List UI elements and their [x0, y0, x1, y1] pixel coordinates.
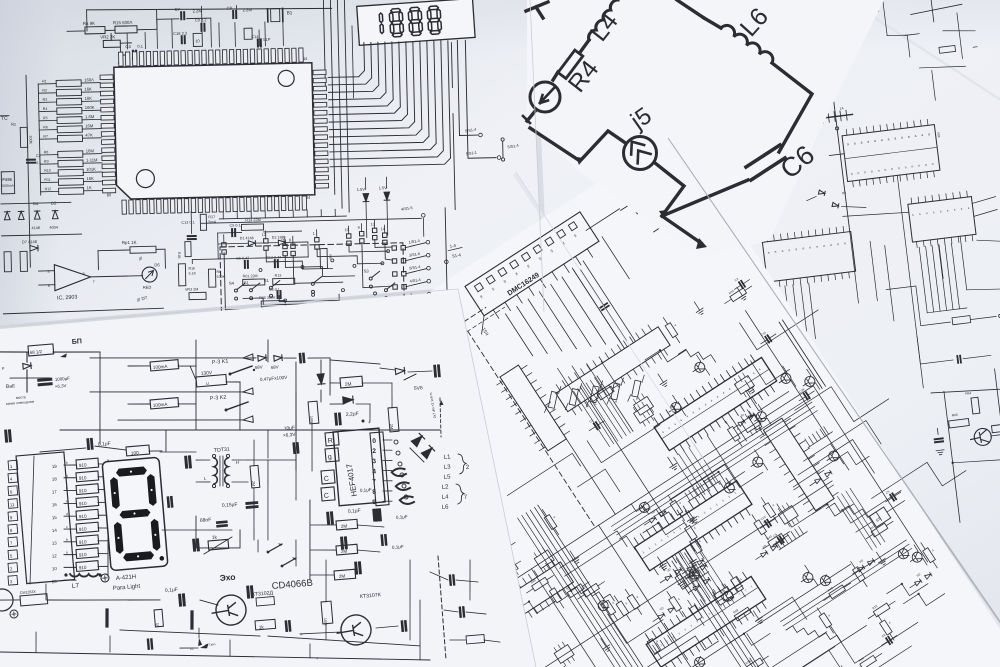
- svg-text:L1: L1: [444, 454, 452, 461]
- svg-text:R01 22M: R01 22M: [243, 274, 258, 278]
- svg-text:+: +: [368, 420, 372, 426]
- svg-text:L3: L3: [444, 464, 452, 471]
- svg-text:TC: TC: [1, 116, 8, 122]
- svg-text:0,1μF: 0,1μF: [165, 587, 178, 594]
- svg-text:100k: 100k: [323, 618, 328, 626]
- svg-text:R66: R66: [952, 413, 959, 418]
- svg-text:RED: RED: [143, 284, 152, 289]
- svg-text:L7: L7: [72, 582, 80, 590]
- svg-text:R7: R7: [43, 135, 48, 139]
- svg-text:10μF: 10μF: [284, 425, 296, 432]
- svg-text:51P: 51P: [263, 37, 271, 42]
- svg-text:910: 910: [79, 565, 87, 571]
- svg-text:R8: R8: [44, 150, 49, 154]
- svg-text:моста: моста: [16, 395, 26, 400]
- svg-text:16K: 16K: [84, 86, 92, 91]
- svg-text:2,2μF: 2,2μF: [346, 411, 359, 418]
- svg-text:7: 7: [93, 280, 95, 284]
- svg-text:C4: C4: [125, 44, 131, 49]
- svg-text:0,1μF: 0,1μF: [396, 514, 408, 520]
- svg-text:БП: БП: [72, 338, 83, 346]
- svg-text:Rz: Rz: [11, 122, 16, 127]
- svg-text:100: 100: [131, 450, 140, 457]
- svg-text:R64: R64: [965, 391, 972, 396]
- svg-text:R3: R3: [43, 98, 48, 102]
- svg-text:5V6: 5V6: [414, 385, 424, 392]
- svg-text:0.1: 0.1: [137, 44, 143, 49]
- svg-text:C: C: [324, 493, 330, 500]
- svg-text:910: 910: [79, 462, 87, 468]
- svg-text:×6,3V: ×6,3V: [283, 432, 297, 439]
- svg-text:2M: 2M: [389, 424, 393, 430]
- svg-text:1K: 1K: [87, 185, 92, 190]
- svg-text:L6: L6: [442, 504, 450, 511]
- svg-text:558: 558: [936, 132, 941, 138]
- svg-text:C7: C7: [175, 7, 181, 12]
- svg-text:B1: B1: [287, 10, 293, 15]
- svg-text:1.5V: 1.5V: [357, 187, 366, 192]
- svg-text:Эхо: Эхо: [219, 572, 236, 583]
- svg-text:2.2M: 2.2M: [243, 7, 253, 12]
- svg-text:910: 910: [79, 539, 87, 545]
- svg-text:D8: D8: [842, 191, 847, 195]
- svg-text:910: 910: [79, 526, 87, 532]
- svg-text:2000mA: 2000mA: [1, 184, 14, 188]
- svg-text:R1: R1: [42, 79, 47, 83]
- svg-text:0,1μF: 0,1μF: [360, 487, 372, 493]
- svg-text:130V: 130V: [201, 370, 213, 377]
- svg-text:IC, 2903: IC, 2903: [57, 294, 78, 301]
- svg-text:R17: R17: [208, 215, 215, 219]
- svg-text:100k: 100k: [309, 416, 314, 424]
- svg-text:C5 0.1: C5 0.1: [229, 223, 240, 227]
- svg-text:0,1μF: 0,1μF: [392, 544, 404, 550]
- svg-text:FUSE: FUSE: [2, 178, 12, 182]
- svg-text:C9 2.2: C9 2.2: [195, 17, 208, 22]
- svg-text:4148: 4148: [31, 226, 40, 230]
- svg-text:Rp1 1K: Rp1 1K: [122, 240, 137, 245]
- svg-text:R16: R16: [188, 267, 195, 271]
- svg-text:R10: R10: [44, 169, 51, 173]
- svg-text:0,1μF: 0,1μF: [348, 508, 361, 515]
- svg-text:1.6M: 1.6M: [85, 114, 95, 119]
- svg-text:C16 2.2: C16 2.2: [173, 31, 188, 36]
- svg-text:R15 500Λ: R15 500Λ: [113, 20, 133, 25]
- svg-text:×6,3V: ×6,3V: [55, 383, 67, 389]
- svg-text:68V: 68V: [255, 364, 263, 370]
- svg-text:S3: S3: [363, 269, 369, 274]
- svg-text:C8: C8: [226, 6, 232, 11]
- svg-text:1-11M: 1-11M: [86, 157, 98, 162]
- svg-text:11: 11: [281, 238, 285, 242]
- svg-text:R1B: R1B: [177, 252, 181, 259]
- svg-text:R2: R2: [42, 89, 47, 93]
- svg-text:D6: D6: [154, 262, 160, 267]
- svg-text:160Λ: 160Λ: [84, 77, 94, 82]
- svg-text:2M: 2M: [339, 573, 346, 579]
- svg-text:D5: D5: [51, 201, 57, 206]
- svg-text:14: 14: [839, 106, 843, 110]
- svg-text:5.1K: 5.1K: [189, 271, 197, 275]
- svg-text:910: 910: [79, 514, 87, 520]
- svg-text:2M: 2M: [345, 381, 352, 388]
- svg-text:0.1: 0.1: [36, 161, 41, 165]
- svg-text:2M: 2M: [341, 549, 348, 555]
- svg-text:1: 1: [313, 232, 315, 236]
- svg-text:68nF: 68nF: [200, 517, 212, 524]
- svg-text:L5: L5: [444, 474, 452, 481]
- svg-text:Ra 9K: Ra 9K: [83, 21, 95, 26]
- svg-text:VR3 2M: VR3 2M: [185, 287, 198, 291]
- svg-text:S4: S4: [229, 281, 235, 286]
- svg-text:16K: 16K: [86, 176, 94, 181]
- svg-text:D1 4148: D1 4148: [240, 236, 254, 240]
- svg-text:10: 10: [155, 623, 159, 628]
- svg-text:C6 0.1: C6 0.1: [269, 288, 280, 292]
- svg-text:10: 10: [190, 647, 194, 651]
- svg-text:L4: L4: [442, 494, 450, 501]
- svg-text:100K: 100K: [28, 135, 32, 144]
- svg-text:2.2M: 2.2M: [193, 8, 203, 13]
- svg-text:16M: 16M: [85, 123, 94, 128]
- svg-text:910: 910: [79, 501, 87, 507]
- svg-text:S1: S1: [244, 280, 250, 285]
- svg-text:4004: 4004: [49, 226, 58, 230]
- svg-text:160K: 160K: [85, 105, 95, 110]
- svg-text:U: U: [206, 381, 209, 386]
- svg-text:g: g: [328, 454, 333, 461]
- svg-text:47K: 47K: [85, 132, 93, 137]
- svg-text:S1: S1: [264, 278, 270, 283]
- svg-text:R13: R13: [275, 274, 282, 278]
- svg-text:R5: R5: [43, 116, 48, 120]
- svg-text:Batt: Batt: [6, 383, 16, 390]
- svg-text:R6: R6: [43, 125, 48, 129]
- svg-text:8: 8: [82, 272, 84, 276]
- svg-text:H: H: [236, 460, 240, 465]
- svg-text:D7 4148: D7 4148: [22, 239, 38, 244]
- svg-text:R11: R11: [44, 178, 50, 182]
- svg-text:910: 910: [79, 475, 87, 481]
- svg-text:1.5V: 1.5V: [379, 185, 388, 190]
- svg-text:101K: 101K: [86, 167, 96, 172]
- svg-text:68 1/2: 68 1/2: [30, 349, 43, 355]
- svg-text:2M: 2M: [251, 481, 255, 487]
- svg-text:R12: R12: [45, 187, 52, 191]
- svg-text:R: R: [328, 438, 334, 445]
- svg-text:910: 910: [79, 552, 87, 558]
- svg-text:C13 0.1: C13 0.1: [181, 220, 194, 224]
- svg-text:R9: R9: [44, 159, 49, 163]
- svg-text:C: C: [324, 476, 330, 483]
- svg-text:VR2 2K: VR2 2K: [100, 34, 115, 39]
- svg-text:R4: R4: [43, 107, 48, 111]
- svg-text:8: 8: [289, 238, 291, 242]
- svg-text:16K: 16K: [84, 96, 92, 101]
- svg-text:2M: 2M: [341, 523, 348, 529]
- svg-text:910: 910: [79, 488, 87, 494]
- svg-text:D4: D4: [33, 201, 39, 206]
- svg-text:9: 9: [358, 226, 360, 230]
- svg-text:16M: 16M: [86, 148, 95, 153]
- svg-text:Cz: Cz: [36, 153, 41, 158]
- svg-text:L2: L2: [442, 484, 450, 491]
- svg-text:68V: 68V: [271, 364, 279, 370]
